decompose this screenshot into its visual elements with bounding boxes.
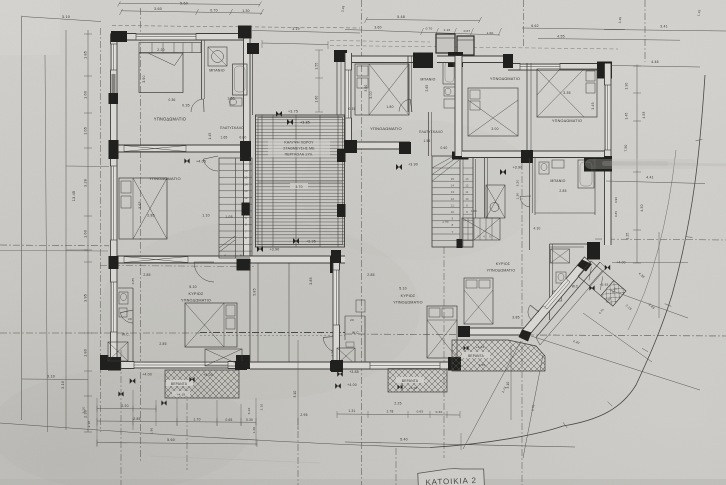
svg-text:W.C.: W.C. xyxy=(352,331,360,335)
svg-text:+3.83: +3.83 xyxy=(600,283,609,287)
svg-text:2.30: 2.30 xyxy=(87,421,91,428)
svg-text:3.00: 3.00 xyxy=(369,91,373,98)
svg-text:12: 12 xyxy=(244,196,248,200)
svg-text:15: 15 xyxy=(244,176,248,180)
svg-text:3.65: 3.65 xyxy=(138,201,142,208)
svg-text:5.10: 5.10 xyxy=(189,285,197,289)
svg-text:3.41: 3.41 xyxy=(660,25,667,29)
svg-text:3.10: 3.10 xyxy=(47,375,55,379)
svg-text:5: 5 xyxy=(240,254,242,258)
svg-text:6.62: 6.62 xyxy=(531,24,538,28)
svg-text:3.85: 3.85 xyxy=(309,277,313,284)
svg-text:5.60: 5.60 xyxy=(167,438,175,442)
svg-text:ΒΕΡΑΝΤΑ: ΒΕΡΑΝΤΑ xyxy=(468,354,484,358)
svg-text:3.10: 3.10 xyxy=(260,404,264,411)
svg-text:+3.75: +3.75 xyxy=(288,110,298,114)
svg-text:16: 16 xyxy=(244,169,248,173)
svg-text:13: 13 xyxy=(244,189,248,193)
svg-text:2.85: 2.85 xyxy=(367,273,374,277)
svg-text:20: 20 xyxy=(128,317,132,321)
svg-text:0.65: 0.65 xyxy=(225,418,232,422)
svg-text:ΥΠΝΟΔΩΜΑΤΙΟ: ΥΠΝΟΔΩΜΑΤΙΟ xyxy=(393,301,422,305)
svg-text:3.10: 3.10 xyxy=(61,381,65,389)
svg-text:+3.90: +3.90 xyxy=(513,166,523,170)
svg-text:2.25: 2.25 xyxy=(394,402,401,406)
svg-text:+3.98: +3.98 xyxy=(409,386,418,390)
svg-text:1.80: 1.80 xyxy=(84,349,88,357)
svg-text:3.28: 3.28 xyxy=(84,179,88,187)
svg-text:4.46: 4.46 xyxy=(651,60,659,64)
svg-text:9: 9 xyxy=(245,216,247,220)
svg-text:2.65: 2.65 xyxy=(425,84,429,91)
svg-text:4.41: 4.41 xyxy=(646,176,654,180)
svg-text:20: 20 xyxy=(350,318,354,322)
svg-text:3.10: 3.10 xyxy=(62,15,70,19)
svg-text:4.30: 4.30 xyxy=(640,204,644,211)
svg-text:2.85: 2.85 xyxy=(143,273,150,277)
svg-text:+3.90: +3.90 xyxy=(270,248,280,252)
svg-text:3.19: 3.19 xyxy=(292,27,299,31)
svg-text:1.95: 1.95 xyxy=(442,220,449,224)
svg-text:13.45: 13.45 xyxy=(72,191,76,202)
svg-text:+3.85: +3.85 xyxy=(300,121,310,125)
svg-text:1.85: 1.85 xyxy=(84,51,88,59)
svg-text:1.10: 1.10 xyxy=(202,214,209,218)
svg-text:8: 8 xyxy=(245,223,247,227)
svg-text:0.30: 0.30 xyxy=(246,418,253,422)
svg-text:14: 14 xyxy=(451,184,455,188)
svg-text:ΠΛΑΤΥΣΚΑΛΟ: ΠΛΑΤΥΣΚΑΛΟ xyxy=(220,126,244,130)
svg-text:12: 12 xyxy=(451,197,455,201)
svg-text:5.60: 5.60 xyxy=(180,1,188,5)
svg-text:5.40: 5.40 xyxy=(400,438,408,442)
svg-text:ΥΠΝΟΔΩΜΑΤΙΟ: ΥΠΝΟΔΩΜΑΤΙΟ xyxy=(370,126,402,131)
svg-text:0.70: 0.70 xyxy=(426,26,433,30)
svg-text:+4.00: +4.00 xyxy=(347,383,357,387)
svg-text:2.85: 2.85 xyxy=(147,214,155,218)
svg-text:5.85: 5.85 xyxy=(253,288,257,295)
svg-text:0.90: 0.90 xyxy=(614,197,618,203)
svg-text:2.95: 2.95 xyxy=(300,413,307,417)
svg-text:ΒΕΡΑΝΤΑ: ΒΕΡΑΝΤΑ xyxy=(171,382,188,386)
svg-text:+4.00: +4.00 xyxy=(203,373,213,377)
svg-text:1.55: 1.55 xyxy=(315,62,319,69)
svg-text:0.36: 0.36 xyxy=(168,98,175,102)
svg-text:0.85: 0.85 xyxy=(131,278,135,285)
svg-text:2.85: 2.85 xyxy=(133,417,140,421)
svg-text:1.55: 1.55 xyxy=(423,139,430,143)
svg-text:14: 14 xyxy=(244,182,248,186)
svg-text:12: 12 xyxy=(465,185,469,188)
svg-text:3.70: 3.70 xyxy=(295,185,302,189)
svg-text:+4.00: +4.00 xyxy=(142,373,152,377)
svg-text:ΥΠΝΟΔΩΜΑΤΙΟ: ΥΠΝΟΔΩΜΑΤΙΟ xyxy=(490,77,520,81)
svg-text:2.20: 2.20 xyxy=(157,48,164,52)
svg-text:+4.18: +4.18 xyxy=(177,393,186,397)
svg-text:1.60: 1.60 xyxy=(315,95,319,102)
svg-text:ΠΕΡΓΚΟΛΑ ΞΥΛ.: ΠΕΡΓΚΟΛΑ ΞΥΛ. xyxy=(285,153,314,157)
svg-text:1.80: 1.80 xyxy=(227,97,234,101)
svg-text:0.35: 0.35 xyxy=(348,107,355,111)
svg-text:10: 10 xyxy=(465,198,469,201)
svg-text:3.60: 3.60 xyxy=(142,75,146,82)
svg-text:11: 11 xyxy=(451,203,454,207)
svg-text:3.00: 3.00 xyxy=(491,127,498,131)
svg-text:2.85: 2.85 xyxy=(559,189,566,193)
svg-text:ΥΠΝΟΔΩΜΑΤΙΟ: ΥΠΝΟΔΩΜΑΤΙΟ xyxy=(149,176,181,181)
svg-text:ΥΠΝΟΔΩΜΑΤΙΟ: ΥΠΝΟΔΩΜΑΤΙΟ xyxy=(487,269,516,273)
svg-text:ΥΠΝΟΔΩΜΑΤΙΟ: ΥΠΝΟΔΩΜΑΤΙΟ xyxy=(181,299,211,303)
svg-text:3.20: 3.20 xyxy=(516,180,520,187)
svg-text:5.48: 5.48 xyxy=(397,15,405,19)
svg-text:1.05: 1.05 xyxy=(471,209,477,213)
svg-text:+3.83: +3.83 xyxy=(476,345,485,349)
svg-text:7: 7 xyxy=(245,229,247,233)
svg-text:4.55: 4.55 xyxy=(557,35,564,39)
svg-text:2.85: 2.85 xyxy=(159,342,166,346)
svg-text:2.65: 2.65 xyxy=(479,363,486,367)
svg-text:1.45: 1.45 xyxy=(625,112,629,119)
svg-text:13: 13 xyxy=(451,190,455,194)
svg-text:3.60: 3.60 xyxy=(374,25,381,29)
svg-text:0.30: 0.30 xyxy=(436,410,443,414)
svg-text:11: 11 xyxy=(466,191,469,194)
svg-text:0.70: 0.70 xyxy=(210,9,217,13)
svg-text:4.10: 4.10 xyxy=(533,227,540,231)
svg-text:3.35: 3.35 xyxy=(563,91,570,95)
svg-text:1.65: 1.65 xyxy=(84,127,88,135)
svg-text:4: 4 xyxy=(224,254,226,258)
svg-text:1.60: 1.60 xyxy=(84,91,88,99)
svg-text:7.50: 7.50 xyxy=(624,144,628,151)
svg-text:1.60: 1.60 xyxy=(252,427,256,434)
svg-text:ΚΥΡΙΟΣ: ΚΥΡΙΟΣ xyxy=(496,262,511,266)
svg-text:1.30: 1.30 xyxy=(242,9,249,13)
svg-text:ΚΑΤΟΙΚΙΑ 2: ΚΑΤΟΙΚΙΑ 2 xyxy=(425,476,477,485)
svg-text:3.85: 3.85 xyxy=(512,316,519,320)
svg-text:4.53: 4.53 xyxy=(642,111,646,118)
svg-text:1.60: 1.60 xyxy=(84,230,88,238)
svg-text:2.20: 2.20 xyxy=(121,404,128,408)
svg-text:ΥΠΝΟΔΩΜΑΤΙΟ: ΥΠΝΟΔΩΜΑΤΙΟ xyxy=(154,117,186,122)
svg-text:1.78: 1.78 xyxy=(386,410,393,414)
svg-text:13: 13 xyxy=(465,178,469,181)
svg-text:10: 10 xyxy=(451,210,455,214)
svg-text:15: 15 xyxy=(451,177,455,181)
svg-text:0.65: 0.65 xyxy=(417,410,424,414)
svg-text:3.45: 3.45 xyxy=(618,16,623,23)
svg-text:0.60: 0.60 xyxy=(440,146,447,150)
svg-text:0.60: 0.60 xyxy=(239,136,246,140)
svg-text:ΜΠΑΝΙΟ: ΜΠΑΝΙΟ xyxy=(550,179,565,183)
svg-text:1.90: 1.90 xyxy=(625,82,629,89)
svg-text:0.35: 0.35 xyxy=(182,104,189,108)
svg-text:+3.85: +3.85 xyxy=(349,370,359,374)
svg-text:3.45: 3.45 xyxy=(591,102,595,109)
svg-text:3.16: 3.16 xyxy=(247,408,251,415)
svg-text:1.30: 1.30 xyxy=(516,193,520,200)
svg-text:ΒΕΡΑΝΤΑ: ΒΕΡΑΝΤΑ xyxy=(402,379,419,383)
svg-text:ΚΥΡΙΩΣ: ΚΥΡΙΩΣ xyxy=(188,292,203,296)
svg-text:ΥΠΝΟΔΩΜΑΤΙΟ: ΥΠΝΟΔΩΜΑΤΙΟ xyxy=(552,119,582,123)
svg-text:1.60: 1.60 xyxy=(487,31,494,35)
svg-text:3.10: 3.10 xyxy=(293,390,297,397)
svg-text:1.16: 1.16 xyxy=(444,28,451,32)
svg-text:ΣΤΑΘΜΕΥΣΗΣ ΜΕ: ΣΤΑΘΜΕΥΣΗΣ ΜΕ xyxy=(283,147,315,151)
svg-text:1.25: 1.25 xyxy=(626,232,630,239)
svg-text:1.70: 1.70 xyxy=(193,417,200,421)
svg-text:ΚΥΡΙΩΣ: ΚΥΡΙΩΣ xyxy=(401,294,416,298)
svg-text:ΚΑΛΥΨΗ ΧΩΡΟΥ: ΚΑΛΥΨΗ ΧΩΡΟΥ xyxy=(284,141,314,145)
svg-text:1.65: 1.65 xyxy=(220,136,227,140)
svg-text:6: 6 xyxy=(245,236,247,240)
svg-text:+3.95: +3.95 xyxy=(306,240,316,244)
svg-text:ΜΠΑΝΙΟ: ΜΠΑΝΙΟ xyxy=(209,69,225,73)
svg-text:1.31: 1.31 xyxy=(348,409,355,413)
svg-text:W.C.: W.C. xyxy=(122,333,130,337)
svg-text:5.10: 5.10 xyxy=(399,287,407,291)
svg-text:+4.05: +4.05 xyxy=(196,160,206,164)
svg-text:1.80: 1.80 xyxy=(386,105,393,109)
svg-text:3.95: 3.95 xyxy=(84,294,88,302)
svg-text:0.67: 0.67 xyxy=(464,29,471,33)
svg-text:1.45: 1.45 xyxy=(208,132,212,139)
svg-text:+3.90: +3.90 xyxy=(408,163,418,167)
svg-text:3.60: 3.60 xyxy=(154,7,162,11)
svg-text:1.05: 1.05 xyxy=(225,215,232,219)
svg-text:ΠΛΑΤΥΣΚΑΛΟ: ΠΛΑΤΥΣΚΑΛΟ xyxy=(419,130,443,134)
svg-text:ΜΠΑΝΙΟ: ΜΠΑΝΙΟ xyxy=(420,78,435,82)
svg-text:0.85: 0.85 xyxy=(614,211,618,217)
svg-text:3.10: 3.10 xyxy=(506,381,510,388)
svg-text:3.10: 3.10 xyxy=(82,407,86,414)
